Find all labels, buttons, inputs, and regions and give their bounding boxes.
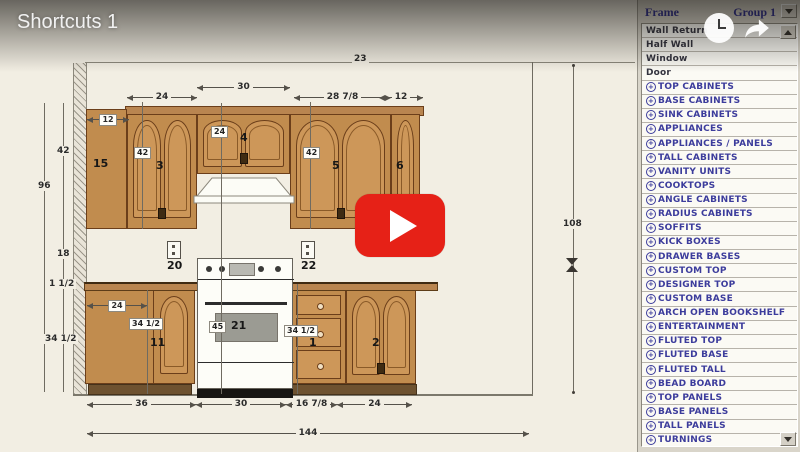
item-number-outlet-right: 22 — [301, 260, 316, 271]
video-player: 23 96 42 18 1 1/2 34 1/2 24 30 28 7/8 12 — [0, 0, 800, 452]
item-number-cab4: 4 — [240, 132, 248, 143]
list-item-label: CUSTOM TOP — [658, 266, 727, 276]
list-item[interactable]: + BASE CABINETS — [642, 95, 797, 109]
list-item-label: FLUTED TALL — [658, 365, 726, 375]
list-item-label: TOP PANELS — [658, 393, 722, 403]
expand-plus-icon[interactable]: + — [646, 153, 656, 163]
list-item-label: TURNINGS — [658, 435, 712, 445]
list-item-label: Half Wall — [646, 40, 693, 50]
scroll-down-button[interactable] — [780, 432, 796, 446]
item-number-cab6: 6 — [396, 160, 404, 171]
list-item-label: DRAWER BASES — [658, 252, 740, 262]
toe-kick-left — [88, 384, 192, 395]
list-item[interactable]: + TALL CABINETS — [642, 151, 797, 165]
watch-later-button[interactable] — [704, 13, 734, 43]
list-item-label: TOP CABINETS — [658, 82, 734, 92]
dim-right-height: 108 — [561, 219, 584, 229]
list-item-label: Door — [646, 68, 671, 78]
item-number-range: 21 — [231, 320, 246, 331]
expand-plus-icon[interactable]: + — [646, 393, 656, 403]
item-number-cab5: 5 — [332, 160, 340, 171]
expand-plus-icon[interactable]: + — [646, 322, 656, 332]
expand-plus-icon[interactable]: + — [646, 124, 656, 134]
dim-upper-box-right: 42 — [303, 147, 320, 159]
expand-plus-icon[interactable]: + — [646, 379, 656, 389]
hourglass-symbol — [566, 258, 578, 272]
item-number-base11: 11 — [150, 337, 165, 348]
list-item[interactable]: + ENTERTAINMENT — [642, 321, 797, 335]
expand-plus-icon[interactable]: + — [646, 407, 656, 417]
list-item-label: ARCH OPEN BOOKSHELF — [658, 308, 785, 318]
list-item[interactable]: + DRAWER BASES — [642, 250, 797, 264]
list-item-label: KICK BOXES — [658, 237, 721, 247]
expand-plus-icon[interactable]: + — [646, 139, 656, 149]
dim-line-base-right — [297, 284, 298, 394]
list-item-label: Window — [646, 54, 688, 64]
dim-endpoint — [572, 391, 575, 394]
list-item[interactable]: Window — [642, 52, 797, 66]
drawer-base-1 — [291, 290, 346, 384]
list-item[interactable]: + COOKTOPS — [642, 179, 797, 193]
dim-backsplash: 18 — [55, 249, 72, 259]
group-dropdown-button[interactable] — [781, 4, 797, 18]
list-item[interactable]: + TURNINGS — [642, 434, 797, 447]
list-item[interactable]: + CUSTOM BASE — [642, 292, 797, 306]
dim-line-108 — [573, 66, 574, 393]
list-item-label: ANGLE CABINETS — [658, 195, 748, 205]
list-item[interactable]: + ANGLE CABINETS — [642, 194, 797, 208]
dim-line-center — [221, 103, 222, 394]
dim-tall-depth: 12 — [87, 114, 129, 125]
item-number-outlet-left: 20 — [167, 260, 182, 271]
range-knob — [275, 266, 281, 272]
expand-plus-icon[interactable]: + — [646, 336, 656, 346]
catalog-list[interactable]: Wall Return Half Wall Window — [641, 23, 798, 447]
dim-total-width: 144 — [87, 428, 529, 439]
dim-bottom-36: 36 — [87, 399, 196, 410]
expand-plus-icon[interactable]: + — [646, 82, 656, 92]
room-right-line — [532, 62, 533, 395]
list-item-label: FLUTED BASE — [658, 350, 728, 360]
dim-line-96 — [44, 103, 45, 392]
cabinet-catalog-panel: Frame Group 1 Wall Return Half Wall — [637, 0, 800, 452]
item-number-tall-cabinet: 15 — [93, 158, 108, 169]
chevron-up-icon — [784, 26, 792, 35]
list-item[interactable]: + SOFFITS — [642, 222, 797, 236]
clock-hand — [718, 27, 726, 29]
dim-base-height: 34 1/2 — [43, 334, 78, 344]
cabinet-door — [245, 120, 284, 167]
list-item[interactable]: + FLUTED BASE — [642, 349, 797, 363]
drawer — [296, 350, 341, 379]
list-item-label: BASE PANELS — [658, 407, 728, 417]
outlet-symbol-right — [301, 241, 315, 259]
list-item[interactable]: + BEAD BOARD — [642, 377, 797, 391]
oven-handle — [205, 302, 287, 305]
list-item-label: CUSTOM BASE — [658, 294, 733, 304]
list-item-label: COOKTOPS — [658, 181, 715, 191]
dim-range-height: 45 — [209, 321, 226, 333]
chevron-down-icon — [785, 9, 793, 18]
expand-plus-icon[interactable]: + — [646, 365, 656, 375]
range-display — [229, 263, 255, 276]
expand-plus-icon[interactable]: + — [646, 350, 656, 360]
cabinet-door — [160, 296, 188, 374]
expand-plus-icon[interactable]: + — [646, 237, 656, 247]
list-item[interactable]: + VANITY UNITS — [642, 165, 797, 179]
list-item-label: VANITY UNITS — [658, 167, 731, 177]
dim-line-base-left — [147, 290, 148, 394]
range-hood — [193, 176, 295, 206]
expand-plus-icon[interactable]: + — [646, 308, 656, 318]
item-number-cab3: 3 — [156, 160, 164, 171]
chevron-down-icon — [784, 437, 792, 446]
dim-upper-box-left: 42 — [134, 147, 151, 159]
outlet-symbol-left — [167, 241, 181, 259]
list-item[interactable]: + TOP CABINETS — [642, 81, 797, 95]
list-item[interactable]: + ARCH OPEN BOOKSHELF — [642, 307, 797, 321]
dim-wall-height: 96 — [36, 181, 53, 191]
expand-plus-icon[interactable]: + — [646, 181, 656, 191]
list-item[interactable]: + TOP PANELS — [642, 391, 797, 405]
range-knob — [206, 266, 212, 272]
expand-plus-icon[interactable]: + — [646, 252, 656, 262]
expand-plus-icon[interactable]: + — [646, 421, 656, 431]
list-item[interactable]: + TALL PANELS — [642, 420, 797, 434]
dim-upper-cab6-width: 12 — [379, 92, 423, 103]
range-base-shadow — [197, 389, 293, 398]
dim-base-left-height: 34 1/2 — [129, 318, 163, 330]
list-item-label: SOFFITS — [658, 223, 702, 233]
list-item-label: Wall Return — [646, 26, 708, 36]
dim-bottom-24: 24 — [337, 399, 412, 410]
dim-cab4-height: 24 — [211, 126, 228, 138]
video-title[interactable]: Shortcuts 1 — [17, 11, 118, 34]
share-arrow-icon — [740, 13, 774, 43]
expand-plus-icon[interactable]: + — [646, 167, 656, 177]
dim-line-42-right — [310, 102, 311, 229]
upper-cabinet-4 — [197, 114, 290, 174]
dim-room-width-top: 23 — [352, 54, 369, 64]
list-item[interactable]: + KICK BOXES — [642, 236, 797, 250]
range-knob — [258, 266, 264, 272]
list-item-label: DESIGNER TOP — [658, 280, 735, 290]
play-button[interactable] — [355, 194, 445, 257]
list-item[interactable]: Door — [642, 66, 797, 80]
list-item-label: BASE CABINETS — [658, 96, 740, 106]
frame-label: Frame — [645, 5, 679, 20]
drawer — [296, 295, 341, 315]
dim-countertop: 1 1/2 — [47, 279, 76, 289]
list-item-label: TALL CABINETS — [658, 153, 738, 163]
expand-plus-icon[interactable]: + — [646, 110, 656, 120]
list-item[interactable]: + APPLIANCES — [642, 123, 797, 137]
list-item-label: RADIUS CABINETS — [658, 209, 753, 219]
list-item-label: APPLIANCES — [658, 124, 723, 134]
range-knob — [219, 266, 225, 272]
scroll-up-button[interactable] — [780, 25, 796, 39]
dim-bottom-16-78: 16 7/8 — [286, 399, 337, 410]
list-item-label: ENTERTAINMENT — [658, 322, 745, 332]
range-drawer-line — [198, 362, 294, 363]
list-item-label: FLUTED TOP — [658, 336, 722, 346]
item-number-base2: 2 — [372, 337, 380, 348]
list-item[interactable]: + CUSTOM TOP — [642, 264, 797, 278]
dim-bottom-30: 30 — [196, 399, 286, 410]
list-item[interactable]: + RADIUS CABINETS — [642, 208, 797, 222]
expand-plus-icon[interactable]: + — [646, 209, 656, 219]
expand-plus-icon[interactable]: + — [646, 223, 656, 233]
dim-upper-cab4-width: 30 — [197, 82, 290, 93]
expand-plus-icon[interactable]: + — [646, 195, 656, 205]
list-item[interactable]: + FLUTED TOP — [642, 335, 797, 349]
dim-upper-cab3-width: 24 — [127, 92, 197, 103]
list-item-label: TALL PANELS — [658, 421, 726, 431]
base-cabinet-2 — [346, 290, 416, 384]
toe-kick-right — [289, 384, 417, 395]
expand-plus-icon[interactable]: + — [646, 96, 656, 106]
item-number-drawer-base: 1 — [309, 337, 317, 348]
list-item-label: APPLIANCES / PANELS — [658, 139, 773, 149]
dim-endpoint — [572, 64, 575, 67]
list-item-label: SINK CABINETS — [658, 110, 738, 120]
expand-plus-icon[interactable]: + — [646, 294, 656, 304]
range-panel-line — [198, 279, 294, 280]
list-item[interactable]: + DESIGNER TOP — [642, 278, 797, 292]
list-item-label: BEAD BOARD — [658, 379, 726, 389]
cabinet-door — [164, 120, 192, 218]
dim-base-left-width: 24 — [87, 300, 147, 311]
cabinet-door — [383, 296, 411, 375]
share-button[interactable] — [740, 13, 774, 47]
expand-plus-icon[interactable]: + — [646, 435, 656, 445]
expand-plus-icon[interactable]: + — [646, 280, 656, 290]
countertop-right — [292, 282, 438, 291]
list-item[interactable]: + FLUTED TALL — [642, 363, 797, 377]
dim-upper-cab5-width: 28 7/8 — [294, 92, 391, 103]
dim-upper-height: 42 — [55, 146, 72, 156]
dim-line-42-left — [142, 102, 143, 229]
list-item[interactable]: + APPLIANCES / PANELS — [642, 137, 797, 151]
play-icon — [390, 210, 417, 242]
list-item[interactable]: + SINK CABINETS — [642, 109, 797, 123]
expand-plus-icon[interactable]: + — [646, 266, 656, 276]
list-item[interactable]: + BASE PANELS — [642, 405, 797, 419]
countertop-left — [84, 282, 198, 291]
